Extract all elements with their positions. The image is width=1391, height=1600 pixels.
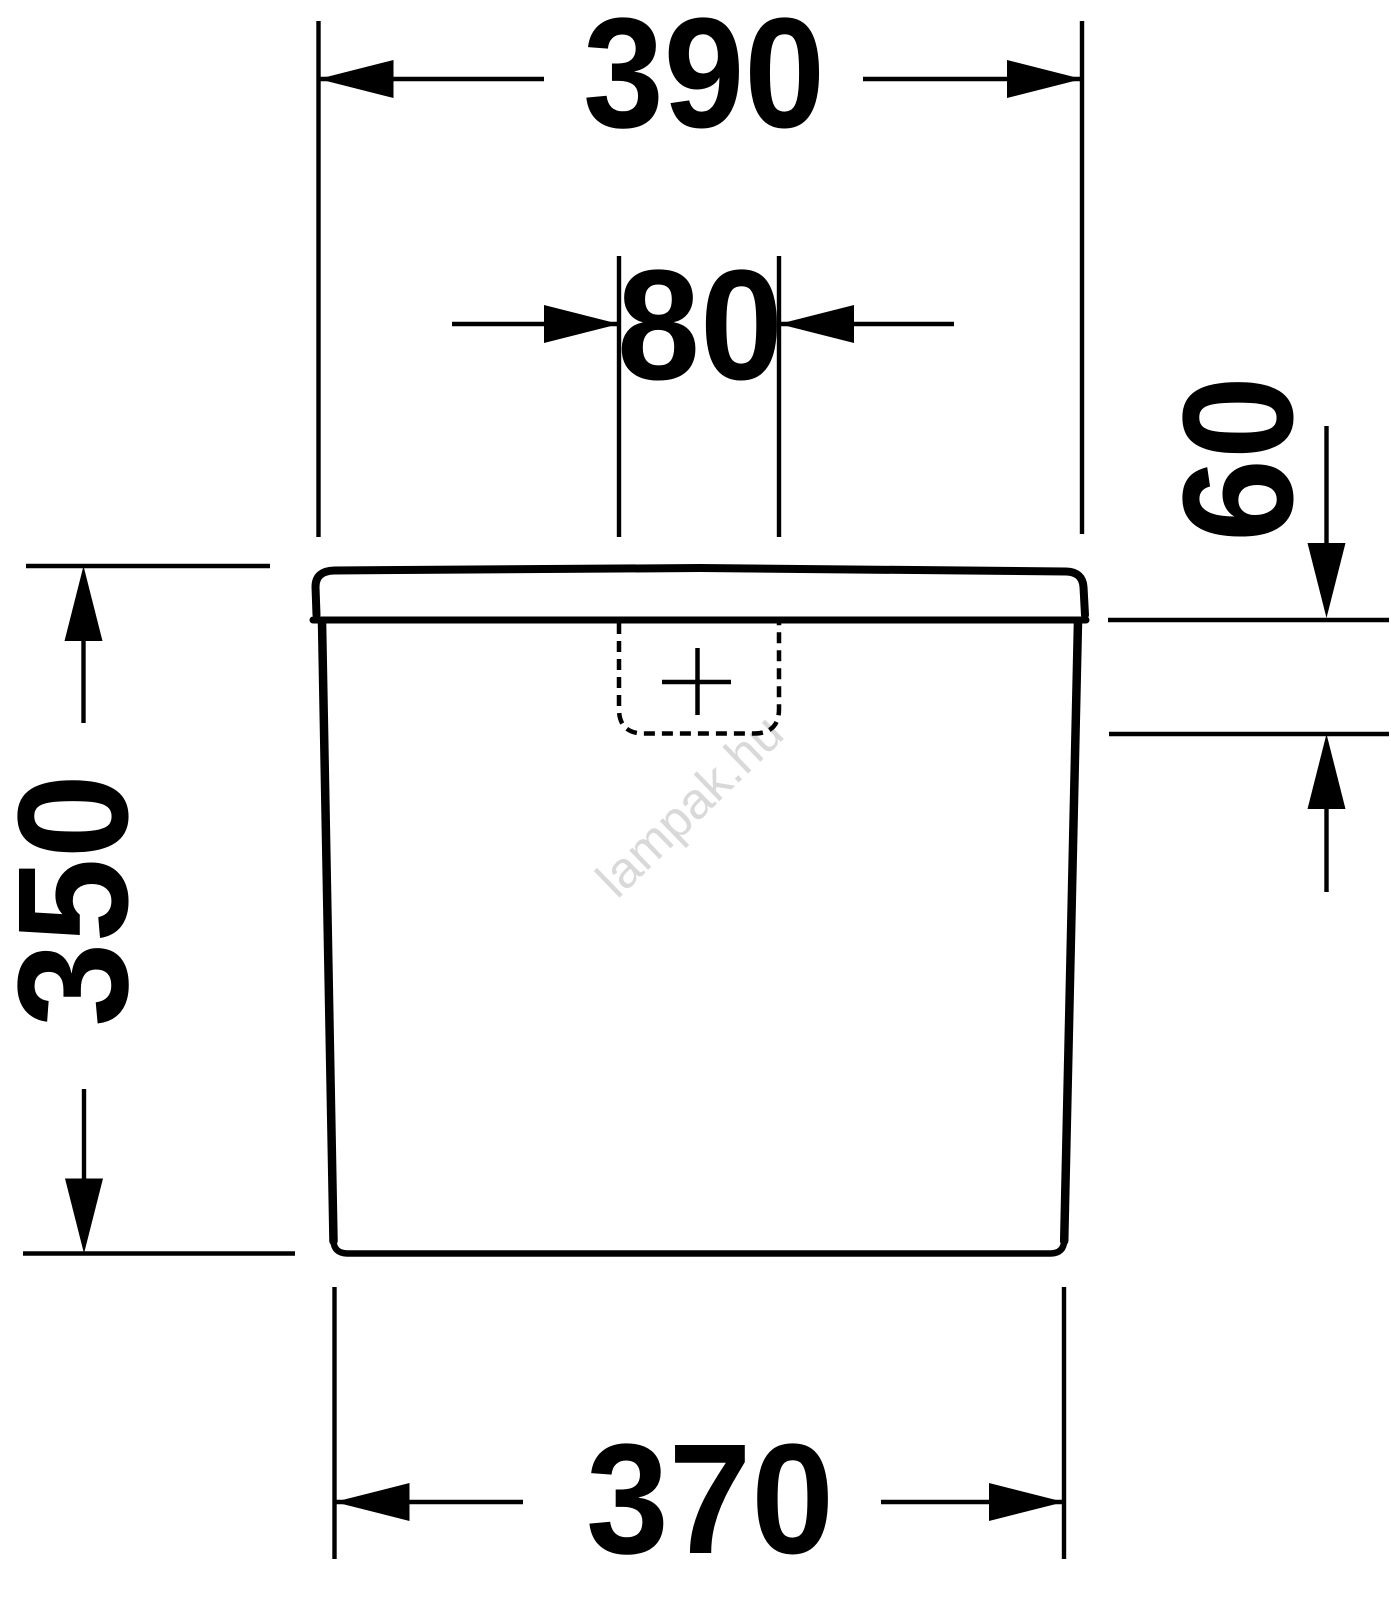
svg-text:80: 80 bbox=[617, 238, 783, 413]
svg-text:390: 390 bbox=[583, 0, 825, 161]
svg-text:370: 370 bbox=[586, 1412, 834, 1587]
svg-text:350: 350 bbox=[0, 774, 161, 1027]
svg-text:60: 60 bbox=[1151, 376, 1326, 542]
